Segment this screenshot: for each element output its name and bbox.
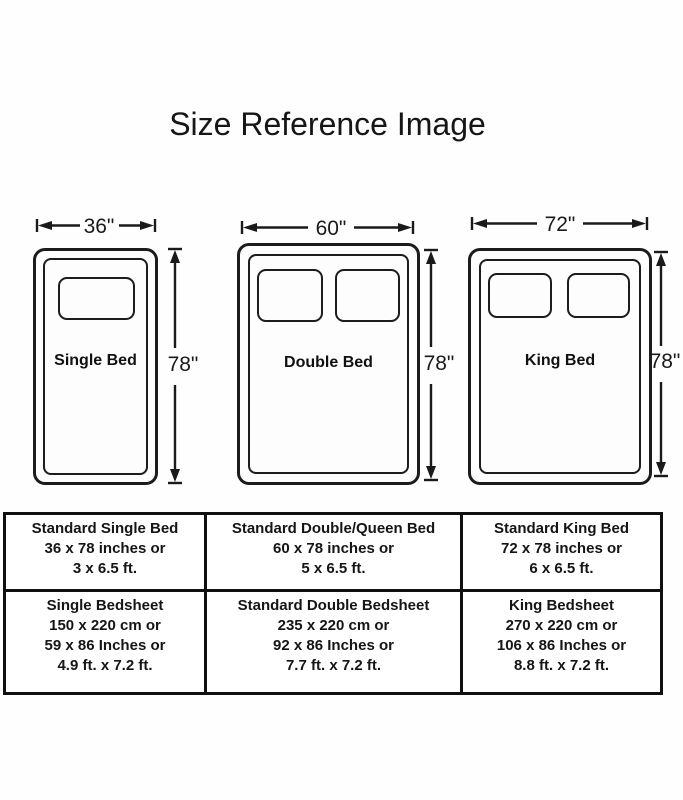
pillow — [257, 269, 323, 322]
bed-label: Double Bed — [240, 354, 417, 372]
cell-single-bedsheet: Single Bedsheet 150 x 220 cm or 59 x 86 … — [5, 591, 206, 694]
king-bed-diagram: King Bed — [468, 248, 652, 485]
pillow — [488, 273, 552, 318]
cell-line: 6 x 6.5 ft. — [465, 559, 658, 579]
cell-line: King Bedsheet — [465, 596, 658, 616]
size-reference-page: Size Reference Image Single Bed Double B… — [0, 0, 683, 800]
cell-line: 150 x 220 cm or — [8, 616, 202, 636]
cell-line: Single Bedsheet — [8, 596, 202, 616]
pillow — [58, 277, 135, 320]
cell-line: 270 x 220 cm or — [465, 616, 658, 636]
cell-double-bedsheet: Standard Double Bedsheet 235 x 220 cm or… — [206, 591, 462, 694]
cell-line: 92 x 86 Inches or — [209, 636, 458, 656]
single-bed-height-arrow: 78" — [168, 249, 199, 483]
table-row-bed-sizes: Standard Single Bed 36 x 78 inches or 3 … — [5, 514, 662, 591]
cell-line: Standard Double/Queen Bed — [209, 519, 458, 539]
cell-line: 235 x 220 cm or — [209, 616, 458, 636]
cell-line: Standard King Bed — [465, 519, 658, 539]
bed-label: King Bed — [471, 352, 649, 370]
page-title: Size Reference Image — [0, 106, 655, 143]
single-bed-diagram: Single Bed — [33, 248, 158, 485]
height-dimension-label: 78" — [424, 352, 455, 375]
pillow — [567, 273, 630, 318]
cell-line: Standard Single Bed — [8, 519, 202, 539]
table-row-bedsheet-sizes: Single Bedsheet 150 x 220 cm or 59 x 86 … — [5, 591, 662, 694]
cell-standard-single-bed: Standard Single Bed 36 x 78 inches or 3 … — [5, 514, 206, 591]
cell-line: 72 x 78 inches or — [465, 539, 658, 559]
width-dimension-label: 36" — [84, 215, 115, 238]
size-table: Standard Single Bed 36 x 78 inches or 3 … — [3, 512, 663, 695]
pillow — [335, 269, 400, 322]
cell-line: 4.9 ft. x 7.2 ft. — [8, 656, 202, 676]
width-dimension-label: 72" — [545, 213, 576, 236]
cell-line: 60 x 78 inches or — [209, 539, 458, 559]
king-bed-height-arrow: 78" — [650, 252, 681, 476]
cell-standard-king-bed: Standard King Bed 72 x 78 inches or 6 x … — [462, 514, 662, 591]
width-dimension-label: 60" — [316, 217, 347, 240]
height-dimension-label: 78" — [168, 353, 199, 376]
bed-label: Single Bed — [36, 352, 155, 370]
cell-line: 59 x 86 Inches or — [8, 636, 202, 656]
cell-line: 3 x 6.5 ft. — [8, 559, 202, 579]
double-bed-width-arrow: 60" — [242, 217, 413, 240]
double-bed-height-arrow: 78" — [424, 250, 455, 480]
cell-standard-double-bed: Standard Double/Queen Bed 60 x 78 inches… — [206, 514, 462, 591]
cell-line: 106 x 86 Inches or — [465, 636, 658, 656]
cell-line: Standard Double Bedsheet — [209, 596, 458, 616]
cell-king-bedsheet: King Bedsheet 270 x 220 cm or 106 x 86 I… — [462, 591, 662, 694]
cell-line: 8.8 ft. x 7.2 ft. — [465, 656, 658, 676]
cell-line: 36 x 78 inches or — [8, 539, 202, 559]
king-bed-width-arrow: 72" — [472, 213, 647, 236]
cell-line: 5 x 6.5 ft. — [209, 559, 458, 579]
height-dimension-label: 78" — [650, 350, 681, 373]
double-bed-diagram: Double Bed — [237, 243, 420, 485]
cell-line: 7.7 ft. x 7.2 ft. — [209, 656, 458, 676]
single-bed-width-arrow: 36" — [37, 215, 155, 238]
